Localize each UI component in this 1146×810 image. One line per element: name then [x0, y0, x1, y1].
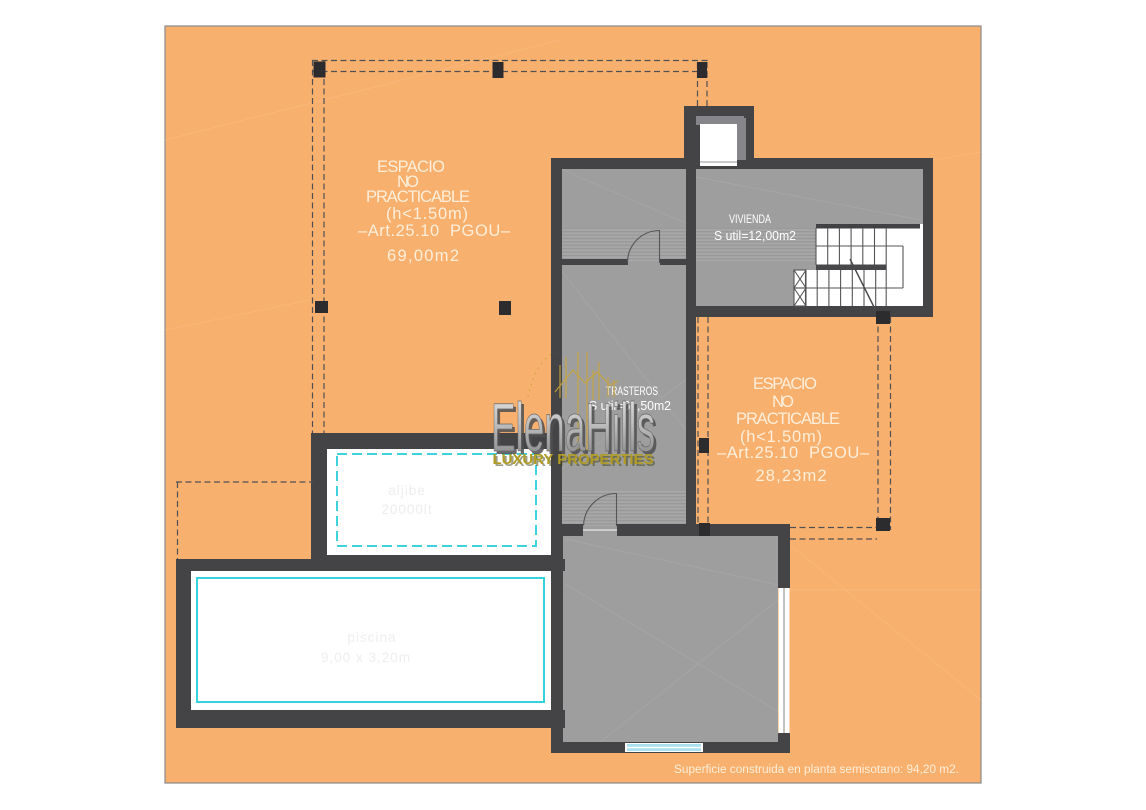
- svg-text:PRACTICABLE: PRACTICABLE: [736, 410, 840, 428]
- svg-text:(h<1.50m): (h<1.50m): [386, 205, 468, 223]
- svg-text:9,00 x 3,20m: 9,00 x 3,20m: [321, 650, 411, 665]
- svg-text:NO: NO: [772, 393, 794, 411]
- svg-text:PRACTICABLE: PRACTICABLE: [366, 188, 470, 206]
- svg-text:VIVIENDA: VIVIENDA: [729, 212, 771, 226]
- svg-text:–Art.25.10 PGOU–: –Art.25.10 PGOU–: [717, 444, 870, 462]
- svg-text:Superficie construida en pl: Superficie construida en planta semisota…: [674, 764, 959, 776]
- svg-text:69,00m2: 69,00m2: [387, 247, 459, 265]
- svg-text:ESPACIO: ESPACIO: [753, 375, 817, 393]
- svg-text:LUXURY PROPERTIES: LUXURY PROPERTIES: [493, 452, 654, 468]
- svg-text:–Art.25.10 PGOU–: –Art.25.10 PGOU–: [358, 222, 511, 240]
- svg-text:aljibe: aljibe: [388, 483, 426, 498]
- svg-text:S util=12,00m2: S util=12,00m2: [714, 228, 796, 243]
- svg-text:28,23m2: 28,23m2: [756, 467, 827, 485]
- svg-text:20000lt: 20000lt: [381, 502, 432, 517]
- svg-text:piscina: piscina: [347, 630, 396, 645]
